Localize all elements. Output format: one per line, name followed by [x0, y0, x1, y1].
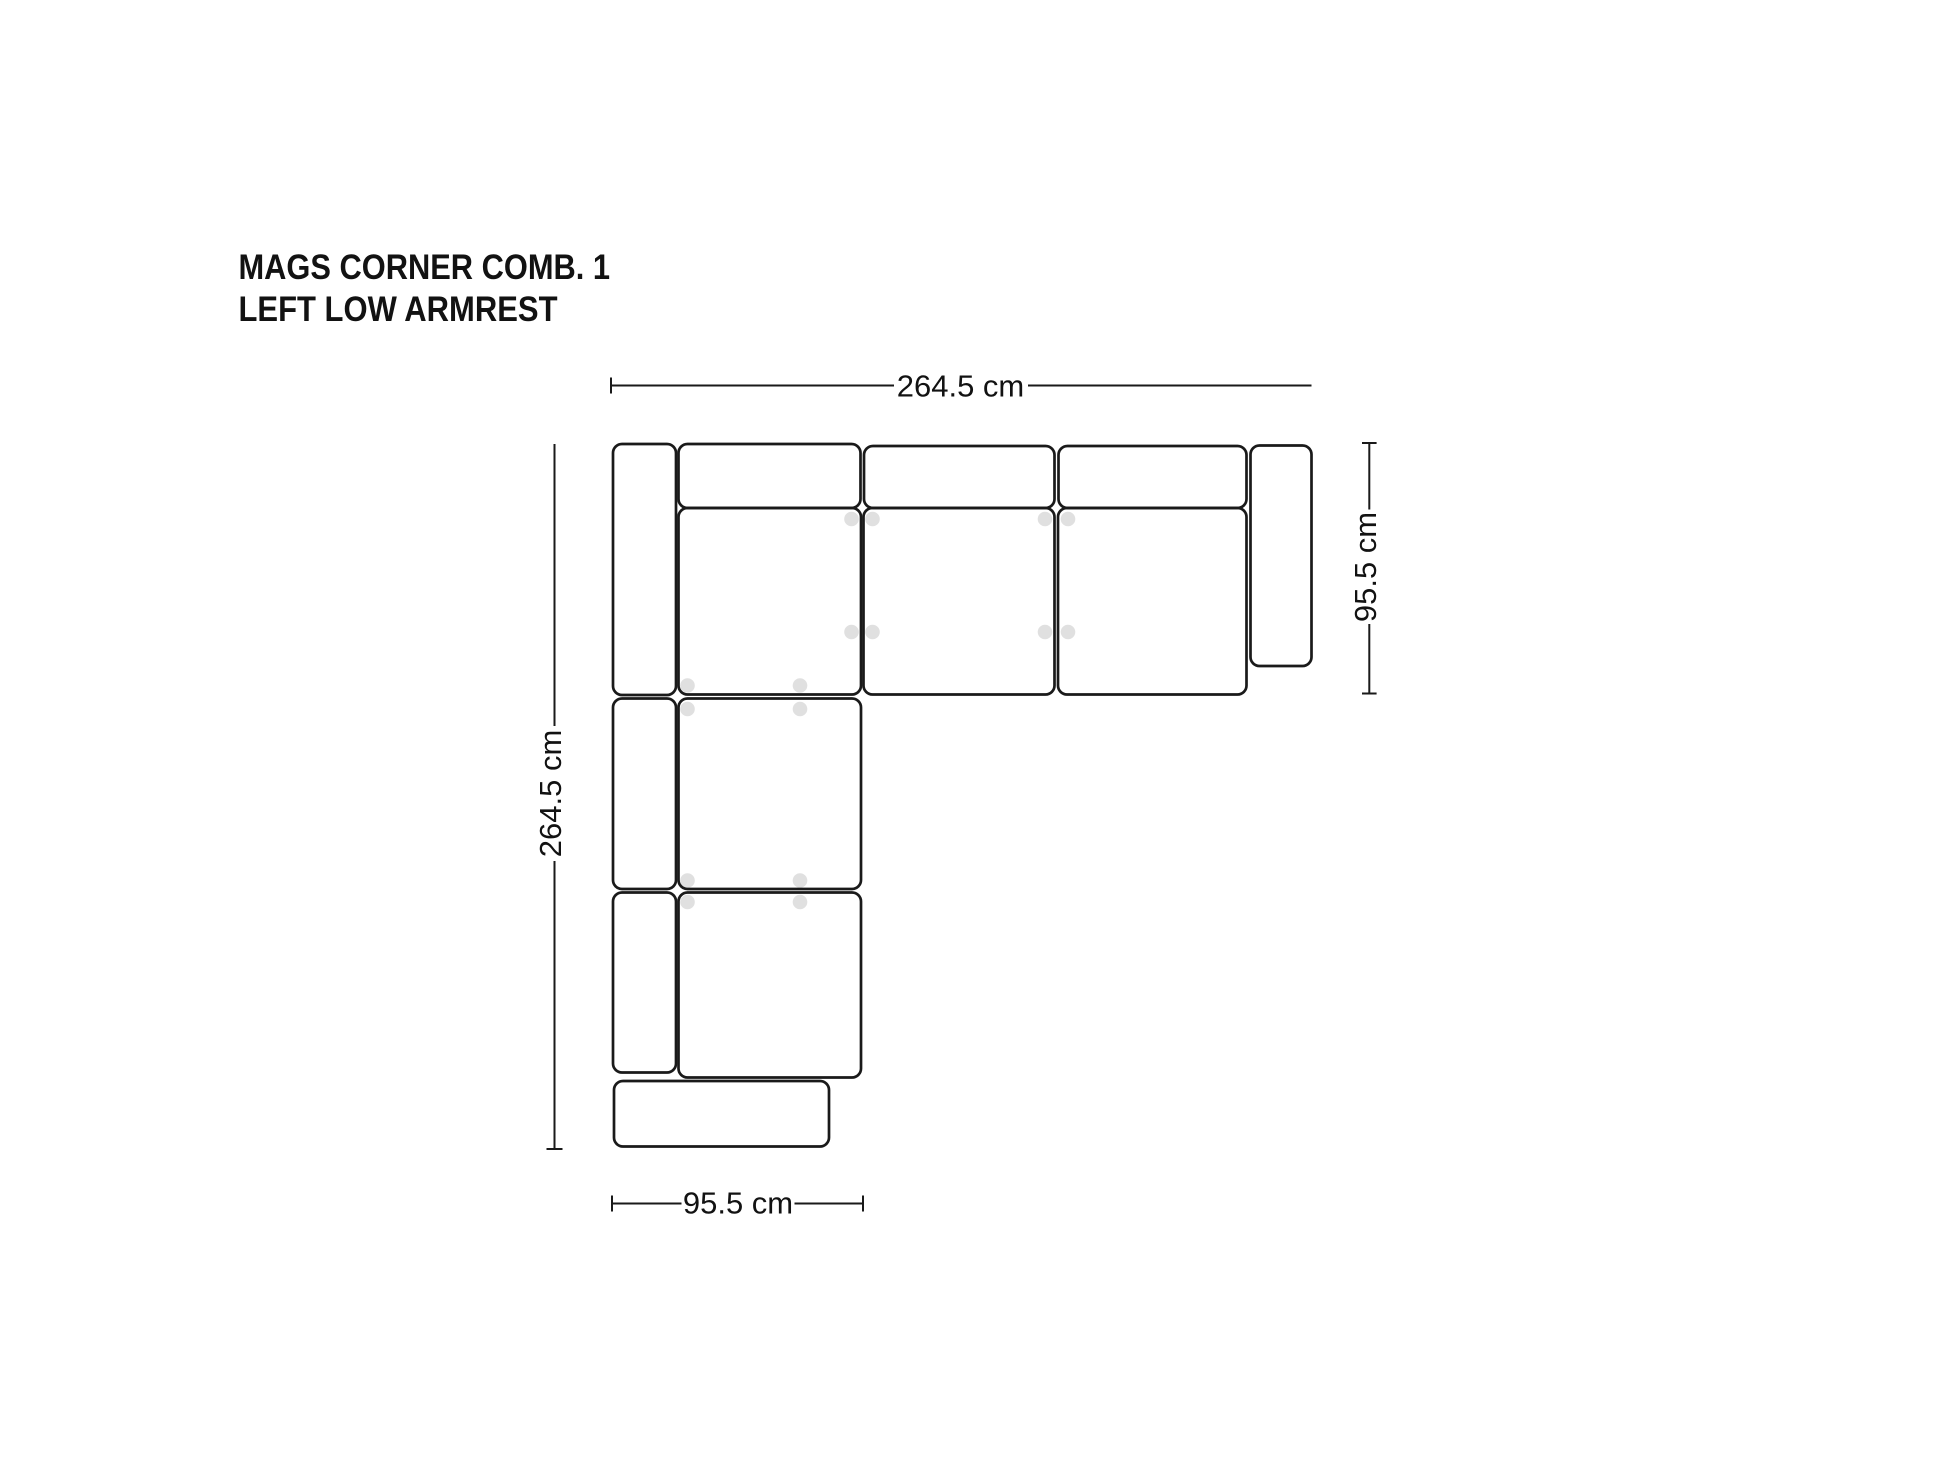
svg-text:264.5 cm: 264.5 cm	[533, 730, 568, 858]
svg-text:95.5 cm: 95.5 cm	[683, 1185, 793, 1220]
svg-text:95.5 cm: 95.5 cm	[1348, 512, 1383, 622]
svg-text:264.5 cm: 264.5 cm	[897, 369, 1025, 404]
svg-text:MAGS CORNER COMB. 1: MAGS CORNER COMB. 1	[239, 248, 611, 287]
svg-text:LEFT LOW ARMREST: LEFT LOW ARMREST	[239, 290, 558, 329]
